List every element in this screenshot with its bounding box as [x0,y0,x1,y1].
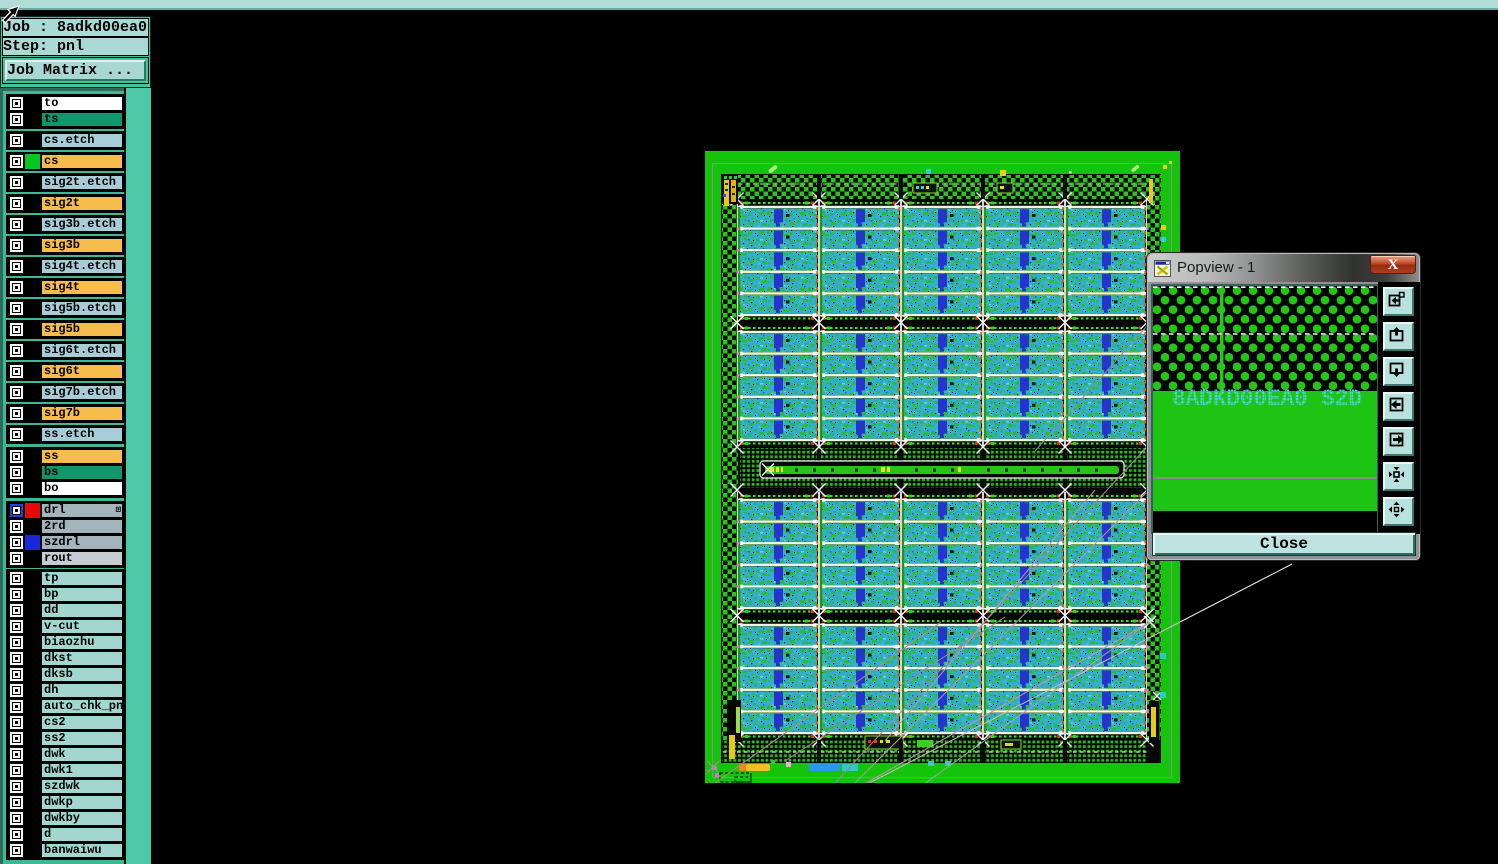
svg-text:8ADKD00EA0 S2D: 8ADKD00EA0 S2D [1172,386,1362,412]
